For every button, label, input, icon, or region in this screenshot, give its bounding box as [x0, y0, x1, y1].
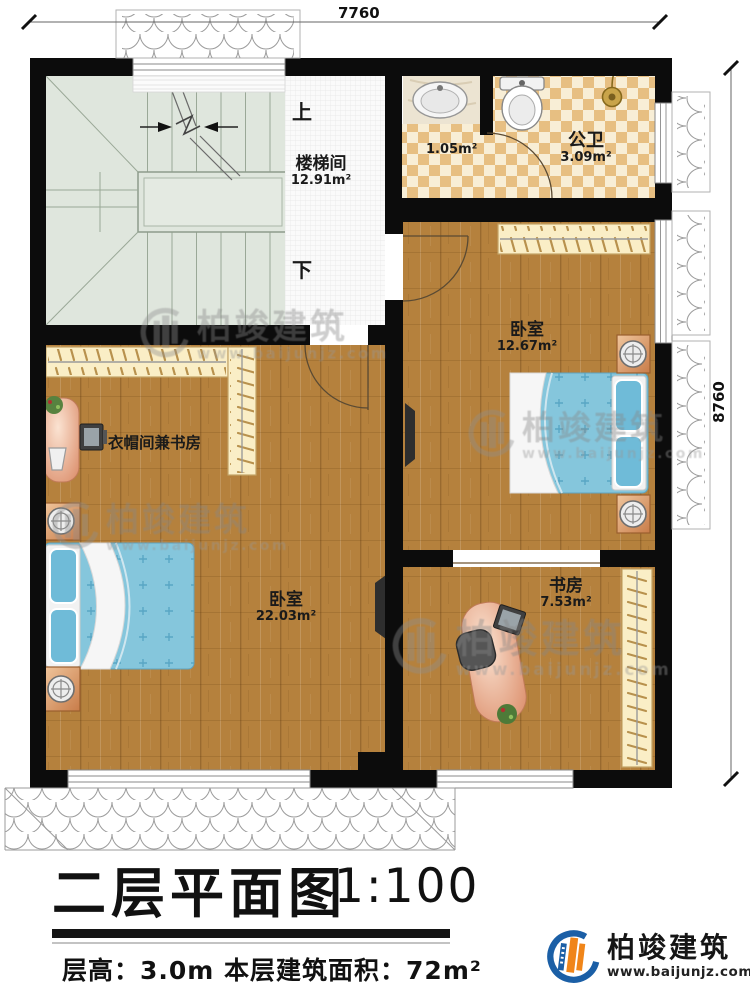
tv-bedroom-right	[405, 403, 415, 467]
title-rule-light	[52, 942, 450, 944]
wardrobe-bedroom-right	[498, 224, 650, 254]
bed-main	[44, 543, 194, 669]
dimension-top-label: 7760	[338, 4, 380, 22]
stairwell-name: 楼梯间	[291, 155, 351, 174]
bedroom-right-name: 卧室	[497, 321, 557, 340]
drawing-scale: 1:100	[334, 859, 479, 914]
brand-logo-name: 柏竣建筑	[607, 934, 750, 962]
bedroom-main-name: 卧室	[256, 591, 316, 610]
brand-logo-url: www.baijunjz.com	[607, 966, 750, 980]
nightstand-right-bottom	[617, 495, 650, 533]
bathroom-name: 公卫	[560, 131, 611, 151]
dimension-right-label: 8760	[710, 381, 728, 423]
roof-bottom	[5, 788, 455, 850]
nightstand-main-bottom	[43, 667, 80, 711]
floorplan-canvas: 7760 8760 上 楼梯间 12.91m² 下 1.05m² 公卫 3.09…	[0, 0, 750, 993]
stairwell-area: 12.91m²	[291, 174, 351, 189]
stair-down-label: 下	[292, 260, 312, 282]
toilet-icon	[500, 77, 544, 130]
bath-lobby-area-label: 1.05m²	[426, 143, 477, 157]
brand-logo-icon	[543, 928, 601, 986]
wardrobe-cloakroom-top	[46, 347, 228, 377]
tv-bedroom-main	[375, 575, 386, 639]
brand-logo: 柏竣建筑 www.baijunjz.com	[543, 928, 750, 986]
stairwell-label: 楼梯间 12.91m²	[291, 155, 351, 189]
study-floor	[403, 567, 655, 770]
roof-right-2	[672, 211, 710, 335]
plant-study-icon	[497, 704, 517, 724]
nightstand-right-top	[617, 335, 650, 373]
window-stairwell	[133, 58, 285, 92]
window-study	[437, 770, 573, 788]
floor-info: 层高：3.0m 本层建筑面积：72m²	[62, 951, 482, 987]
cloakroom-label: 衣帽间兼书房	[108, 435, 201, 452]
roof-right-1	[672, 92, 710, 192]
bathroom-label: 公卫 3.09m²	[560, 131, 611, 166]
roof-top	[116, 10, 300, 58]
roof-right-3	[672, 341, 710, 529]
bathroom-area: 3.09m²	[560, 151, 611, 166]
stairwell-floor	[46, 76, 288, 325]
study-name: 书房	[540, 577, 591, 596]
wardrobe-study	[622, 569, 652, 767]
wardrobe-cloakroom-side	[228, 347, 256, 475]
window-bedroom-main	[68, 770, 310, 788]
bedroom-right-area: 12.67m²	[497, 340, 557, 355]
page-title: 二层平面图	[52, 849, 347, 928]
bedroom-main-area: 22.03m²	[256, 610, 316, 625]
title-block: 二层平面图 1:100 层高：3.0m 本层建筑面积：72m² 柏竣建筑 www…	[0, 843, 750, 993]
window-bathroom-right	[655, 103, 672, 183]
title-rule-heavy	[52, 929, 450, 938]
study-area: 7.53m²	[540, 596, 591, 611]
stair-up-label: 上	[292, 102, 312, 124]
window-bedroom-right	[655, 220, 672, 343]
nightstand-main-top	[43, 503, 80, 540]
study-label: 书房 7.53m²	[540, 577, 591, 611]
desk-cloakroom	[44, 396, 79, 482]
bedroom-right-label: 卧室 12.67m²	[497, 321, 557, 355]
sink-icon	[413, 82, 467, 118]
monitor-cloakroom-icon	[80, 424, 107, 450]
bedroom-main-label: 卧室 22.03m²	[256, 591, 316, 625]
bed-right	[510, 373, 648, 493]
